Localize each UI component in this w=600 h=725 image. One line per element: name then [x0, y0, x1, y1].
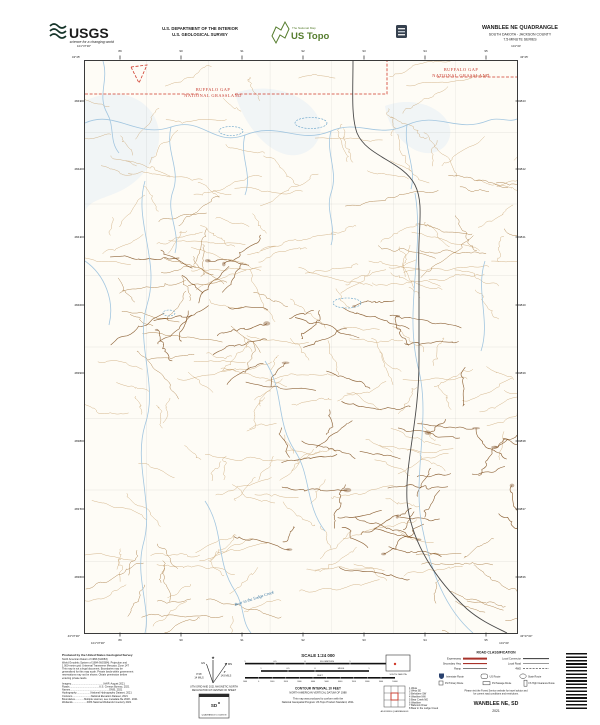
dept-survey-line: U.S. GEOLOGICAL SURVEY: [172, 32, 228, 37]
header: USGS science for a changing world U.S. D…: [50, 22, 558, 44]
quad-series: 7.5-MINUTE SERIES: [503, 38, 537, 42]
grassland-label: BUFFALO GAP: [196, 87, 231, 92]
grid-tick-label: 89: [118, 638, 122, 642]
grid-tick-label: 4839: [74, 371, 81, 375]
scale-tick-label: 0: [258, 681, 259, 683]
topographic-map: BUFFALO GAP NATIONAL GRASSLAND BUFFALO G…: [85, 61, 517, 633]
source-line: Contours..........................Nation…: [62, 694, 128, 698]
source-line: Boundaries.............Multiple sources;…: [62, 697, 138, 701]
this-quad-cell: [391, 693, 398, 700]
scale-unit-label: KILOMETERS: [320, 661, 335, 663]
contour-interval-note: CONTOUR INTERVAL 10 FEET: [295, 687, 341, 691]
grid-tick-label: 91: [240, 638, 244, 642]
usgs-logo: USGS science for a changing world: [50, 24, 115, 44]
scale-tick-label: 9000: [379, 681, 383, 683]
grid-tick-label: 93: [362, 638, 366, 642]
road-class-title: ROAD CLASSIFICATION: [476, 651, 516, 655]
sheet-name: WANBLEE NE, SD: [474, 701, 519, 707]
adjoining-list: 1 Weta 2 Weta SE 3 Belvidere SW 4 Wanble…: [409, 687, 439, 710]
feet-scale-bar: FEET 1000 0 1000 2000 3000 4000 5000: [243, 675, 398, 683]
corner-coordinate: 43°45′: [72, 55, 81, 59]
scale-tick-label: 0.5: [273, 661, 277, 663]
corner-coordinate: 101°30′: [511, 44, 521, 48]
agency-emblem-icon: [396, 25, 407, 38]
grid-tick-label: 4839: [519, 371, 526, 375]
road-classification: ROAD CLASSIFICATION Expressway Local Con…: [439, 651, 555, 714]
true-north-star-icon: ★: [211, 655, 215, 660]
grid-north-label: GN: [201, 661, 205, 665]
mile-scale-bar: 1 0.5 0 MILES 1: [260, 668, 370, 672]
credit-line: North American Datum of 1983 (NAD83): [62, 657, 108, 661]
barcode: [566, 653, 587, 711]
fs-route-label: FS Passage Route: [492, 682, 512, 685]
grid-tick-label: 4841: [519, 235, 526, 239]
adjoining-quad: 7 Babcock Draw: [409, 704, 427, 707]
state-route-shield-icon: [520, 674, 526, 679]
adjoining-quad: 2 Weta SE: [409, 690, 421, 693]
grid-tick-label: 94: [423, 49, 427, 53]
interstate-shield-icon: [439, 674, 444, 680]
adjoining-quad: 4 Wanblee NW: [409, 696, 426, 699]
adjoining-caption: ADJOINING QUADRANGLES: [381, 710, 409, 713]
grid-tick-label: 95: [484, 49, 488, 53]
floodplain-wash: [85, 89, 450, 211]
conformity-note: National Geospatial Program US Topo Prod…: [282, 700, 355, 704]
road-class-label: 4WD: [515, 666, 521, 670]
scale-tick-label: 1: [349, 661, 351, 663]
road-class-label: Local Connector: [502, 656, 521, 660]
kilometer-scale-bar: 1 0.5 0 KILOMETERS 1 2: [244, 661, 396, 665]
map-canvas: BUFFALO GAP NATIONAL GRASSLAND BUFFALO G…: [84, 60, 518, 634]
grid-tick-label: 4837: [519, 507, 526, 511]
production-credits: Produced by the United States Geological…: [62, 653, 138, 704]
declination-diagram: ★ GN MN 0°46′ 14 MILS 8° 143 MILS UTM GR…: [190, 655, 238, 718]
grid-tick-label: 4842: [74, 167, 81, 171]
dept-interior-line: U.S. DEPARTMENT OF THE INTERIOR: [162, 26, 238, 31]
usgs-logo-text: USGS: [69, 25, 109, 41]
road-class-label: Secondary Hwy: [443, 661, 462, 665]
adjoining-quad: 5 Bear Creek NE: [409, 698, 428, 701]
shield-label: US Route: [490, 675, 501, 678]
grassland-label: NATIONAL GRASSLAND: [184, 93, 242, 98]
scale-block: SCALE 1:24 000 1 0.5 0 KILOMETERS 1 2 1 …: [243, 653, 398, 704]
scale-tick-label: 1000: [243, 681, 247, 683]
grid-tick-label: 90: [179, 49, 183, 53]
ustopo-map-icon: [272, 22, 289, 43]
scale-tick-label: 1000: [270, 681, 274, 683]
grid-tick-label: 92: [301, 49, 305, 53]
fs-passage-icon: [483, 682, 490, 685]
scale-tick-label: 1: [244, 661, 246, 663]
grid-tick-label: 91: [240, 49, 244, 53]
credit-line: 1 000-meter grid: Universal Transverse M…: [62, 663, 129, 667]
grid-tick-label: 4836: [519, 575, 526, 579]
state-map-caption: SOUTH DAKOTA: [389, 673, 407, 676]
quad-location-dot: [394, 663, 396, 665]
location-inset-caption: QUADRANGLE LOCATION: [202, 714, 227, 717]
grid-tick-label: 4838: [74, 439, 81, 443]
corner-coordinate: 43°45′: [520, 55, 529, 59]
adjoining-quad: 8 Bear in the Lodge Creek: [409, 707, 439, 710]
grid-tick-label: 89: [118, 49, 122, 53]
gn-declination-mils: 14 MILS: [194, 676, 204, 679]
credit-line: reservations may not be shown. Obtain pe…: [62, 673, 128, 677]
ustopo-logo: The National Map US Topo: [272, 22, 330, 43]
adjoining-quad: 6 Wanblee: [409, 701, 421, 704]
scale-tick-label: 0: [304, 661, 306, 663]
grid-tick-label: 95: [484, 638, 488, 642]
state-location-map: SOUTH DAKOTA: [386, 655, 410, 676]
grid-tick-label: 4843: [519, 99, 526, 103]
national-map-brand: The National Map: [292, 26, 316, 30]
scale-tick-label: 2: [394, 661, 396, 663]
quadrangle-location-inset: SD QUADRANGLE LOCATION: [199, 694, 229, 718]
corner-coordinate: 101°37′30″: [77, 44, 91, 48]
gn-declination-value: 0°46′: [196, 673, 202, 676]
scale-tick-label: 10000: [392, 681, 397, 683]
scale-tick-label: 0.5: [286, 668, 290, 670]
scale-unit-label: MILES: [338, 668, 345, 670]
quad-title-block: WANBLEE NE QUADRANGLE SOUTH DAKOTA - JAC…: [482, 25, 558, 42]
fs-route-label: FS Primary Route: [445, 682, 464, 685]
mn-declination-mils: 143 MILS: [221, 674, 232, 677]
scale-title: SCALE 1:24 000: [301, 653, 335, 658]
declination-caption: UTM GRID AND 2021 MAGNETIC NORTH: [190, 686, 238, 689]
source-line: Roads...................................…: [62, 685, 130, 689]
corner-coordinate: 101°30′: [499, 641, 509, 645]
grid-tick-label: 4836: [74, 575, 81, 579]
credits-title: Produced by the United States Geological…: [62, 653, 133, 657]
grid-tick-label: 93: [362, 49, 366, 53]
us-route-shield-icon: [481, 674, 488, 679]
source-line: Wetlands....................FWS National…: [62, 700, 132, 704]
credit-line: generalized for this map scale. Private …: [62, 670, 134, 674]
grid-tick-label: 4841: [74, 235, 81, 239]
scale-tick-label: 7000: [352, 681, 356, 683]
corner-coordinate: 43°37′30″: [68, 634, 80, 638]
magnetic-north-arrow-icon: [225, 663, 227, 665]
grid-tick-label: 4837: [74, 507, 81, 511]
magnetic-north-label: MN: [228, 662, 232, 666]
shield-label: Interstate Route: [446, 675, 464, 678]
grid-tick-label: 4843: [74, 99, 81, 103]
scale-tick-label: 8000: [365, 681, 369, 683]
scale-tick-label: 6000: [338, 681, 342, 683]
scale-tick-label: 3000: [297, 681, 301, 683]
scale-tick-label: 4000: [311, 681, 315, 683]
road-class-label: Expressway: [447, 656, 462, 660]
creek-label: Bear in the Lodge Creek: [234, 589, 275, 606]
road-class-label: Local Road: [508, 661, 522, 665]
credit-line: entering private lands.: [62, 676, 87, 680]
source-line: Hydrography....................National …: [62, 691, 132, 695]
declination-caption: DECLINATION AT CENTER OF SHEET: [192, 689, 237, 692]
grassland-label: NATIONAL GRASSLAND: [432, 73, 490, 78]
department-block: U.S. DEPARTMENT OF THE INTERIOR U.S. GEO…: [162, 26, 238, 37]
adjoining-quad: 3 Belvidere SW: [409, 693, 427, 696]
adjoining-quad: 1 Weta: [409, 687, 417, 690]
corner-coordinate: 43°37′30″: [520, 634, 532, 638]
adjoining-quadrangles: ADJOINING QUADRANGLES 1 Weta 2 Weta SE 3…: [381, 686, 439, 713]
credit-line: This map is not a legal document. Bounda…: [62, 667, 123, 671]
mn-declination-value: 8°: [224, 671, 226, 674]
quad-subtitle: SOUTH DAKOTA - JACKSON COUNTY: [489, 33, 552, 37]
grid-tick-label: 4840: [519, 303, 526, 307]
ustopo-brand: US Topo: [291, 31, 330, 42]
usgs-wave-icon: [50, 24, 66, 38]
grid-tick-label: 94: [423, 638, 427, 642]
grid-tick-label: 92: [301, 638, 305, 642]
grid-tick-label: 4838: [519, 439, 526, 443]
shield-label: State Route: [528, 675, 542, 678]
grid-tick-label: 90: [179, 638, 183, 642]
credit-line: World Geodetic System of 1984 (WGS84). P…: [62, 660, 128, 664]
source-line: Imagery.................................…: [62, 681, 125, 685]
state-abbreviation: SD: [211, 703, 218, 708]
grid-tick-label: 4840: [74, 303, 81, 307]
vertical-datum-note: NORTH AMERICAN VERTICAL DATUM OF 1988: [289, 691, 347, 695]
scale-unit-label: FEET: [317, 675, 323, 677]
fs-route-label: FS High Clearance Route: [529, 682, 556, 685]
usgs-topo-sheet: BUFFALO GAP NATIONAL GRASSLAND BUFFALO G…: [0, 0, 600, 725]
road-class-label: Ramp: [454, 666, 461, 670]
fs-primary-icon: [439, 681, 443, 685]
scale-tick-label: 5000: [324, 681, 328, 683]
scale-tick-label: 0: [314, 668, 316, 670]
grid-tick-label: 4842: [519, 167, 526, 171]
corner-coordinate: 101°37′30″: [91, 641, 105, 645]
quad-location-dot: [218, 702, 220, 704]
road-note: for current road conditions and restrict…: [473, 693, 519, 696]
scale-tick-label: 1: [368, 668, 370, 670]
road-note: Please visit the Forest Service website …: [464, 690, 528, 693]
scale-tick-label: 1: [260, 668, 262, 670]
grassland-label: BUFFALO GAP: [444, 67, 479, 72]
conformity-note: This map was produced to conform with th…: [293, 697, 344, 701]
usgs-tagline: science for a changing world: [70, 40, 115, 44]
source-line: Names...................................…: [62, 688, 123, 692]
sheet-year: 2021: [492, 709, 500, 713]
scale-tick-label: 2000: [284, 681, 288, 683]
quad-title: WANBLEE NE QUADRANGLE: [482, 25, 558, 31]
fs-high-clearance-icon: [524, 680, 527, 686]
